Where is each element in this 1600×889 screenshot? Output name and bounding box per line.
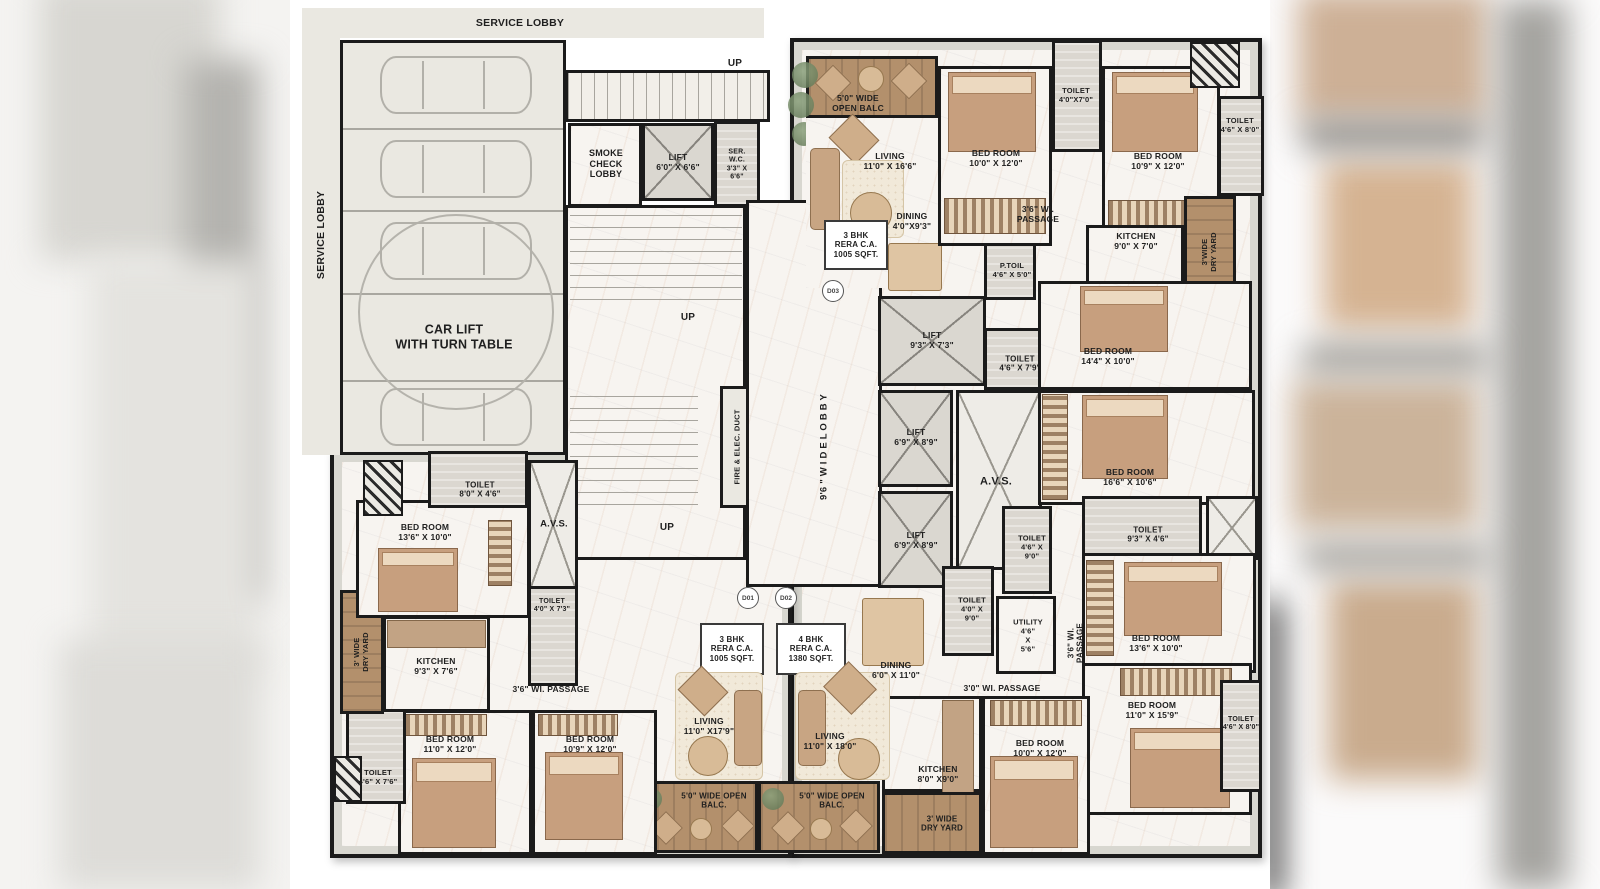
wardrobe-1159 [1120, 668, 1232, 696]
wardrobe-136l [488, 520, 512, 586]
toilet-46x79-label: TOILET4'6" X 7'9" [999, 355, 1040, 374]
blur-shape [1303, 345, 1488, 371]
fire-elec-duct-label: FIRE & ELEC. DUCT [734, 409, 743, 484]
blurred-left-panel [0, 0, 290, 889]
toilet-46x80-top [1218, 96, 1264, 196]
powder-toilet-label: P.TOIL4'6" X 5'0" [993, 262, 1032, 280]
car-4 [380, 388, 532, 446]
avs-shaft-right-label: A.V.S. [980, 476, 1012, 489]
avs-shaft-left-label: A.V.S. [540, 518, 568, 529]
balc-bl-seat-2 [690, 818, 712, 840]
tree-5 [762, 788, 784, 810]
blur-shape [1328, 580, 1478, 780]
stairs-mid [570, 212, 742, 300]
tree-2 [788, 92, 814, 118]
unit-box-3bhk-bottom-label: 3 BHKRERA C.A.1005 SQFT. [710, 635, 755, 663]
bed-144 [1080, 286, 1168, 352]
toilet-40x90-label: TOILET4'0" X9'0" [958, 597, 986, 624]
blur-shape [1323, 160, 1473, 330]
passage-bottom-left-label: 3'6" WI. PASSAGE [512, 684, 589, 694]
car-lift-room-label: CAR LIFTWITH TURN TABLE [395, 322, 512, 352]
balc-seat-2 [858, 66, 884, 92]
smoke-check-lobby-label: SMOKECHECKLOBBY [589, 148, 623, 180]
toilet-46x80-bottom-label: TOILET4'6" X 8'0" [1223, 716, 1259, 733]
lift-93x73-label: LIFT9'3" X 7'3" [910, 330, 954, 350]
living-top-right-label: LIVING11'0" X 16'6" [864, 151, 917, 171]
up-label-mid-label: UP [681, 312, 695, 324]
bed-136r [1124, 562, 1222, 636]
toilet-40x73-label: TOILET4'0" X 7'3" [534, 598, 570, 615]
door-marker-d02: D02 [775, 587, 797, 609]
servant-wc-label: SER.W.C.3'3" X6'6" [727, 149, 748, 182]
car-2 [380, 140, 532, 198]
bedroom-136-left-label: BED ROOM13'6" X 10'0" [398, 522, 451, 542]
blur-shape [1268, 600, 1282, 889]
dining-table-tr [888, 243, 942, 291]
unit-box-3bhk-top-label: 3 BHKRERA C.A.1005 SQFT. [834, 231, 879, 259]
door-marker-d03: D03 [822, 280, 844, 302]
toilet-46x90-label: TOILET4'6" X9'0" [1018, 535, 1046, 562]
bed-1112 [412, 758, 496, 848]
wardrobe-166 [1042, 394, 1068, 500]
bed-136l [378, 548, 458, 612]
toilet-40x70-label: TOILET4'0"X7'0" [1059, 87, 1093, 105]
open-balc-bottom-left-label: 5'0" WIDE OPENBALC. [681, 792, 746, 811]
wardrobe-1092 [538, 714, 618, 736]
open-balc-top-right-label: 5'0" WIDEOPEN BALC [832, 93, 884, 113]
blur-shape [60, 640, 260, 889]
living-bottom-right-label: LIVING11'0" X 18'0" [804, 731, 857, 751]
screenshot-stage: D01D02D03SERVICE LOBBYSERVICE LOBBYCAR L… [0, 0, 1600, 889]
car-stall-divider-2 [343, 210, 563, 212]
toilet-93x46-label: TOILET9'3" X 4'6" [1127, 526, 1168, 545]
unit-box-4bhk-label: 4 BHKRERA C.A.1380 SQFT. [789, 635, 834, 663]
bedroom-tr-2-label: BED ROOM10'9" X 12'0" [1131, 151, 1184, 171]
up-label-low-label: UP [660, 522, 674, 534]
bedroom-136-right-label: BED ROOM13'6" X 10'0" [1129, 633, 1182, 653]
bed-1012b [990, 756, 1078, 848]
dry-yard-left-label: 3' WIDEDRY YARD [353, 632, 371, 672]
bed-1092 [545, 752, 623, 840]
kitchen-bottom-right-label: KITCHEN8'0" X9'0" [917, 764, 958, 784]
tree-1 [792, 62, 818, 88]
bedroom-tr-1-label: BED ROOM10'0" X 12'0" [969, 148, 1022, 168]
toilet-46x76-label: TOILET4'6" X 7'6" [359, 769, 398, 787]
blur-shape [1298, 0, 1488, 120]
toilet-46x80-top-label: TOILET4'6" X 8'0" [1221, 117, 1260, 135]
sofa-tr-1 [810, 148, 840, 230]
sofa-lbl [734, 690, 762, 766]
blurred-right-panel [1268, 0, 1600, 889]
deck-right [1206, 496, 1258, 560]
wardrobe-136r [1086, 560, 1114, 656]
bedroom-1012-bottom-label: BED ROOM10'0" X 12'0" [1013, 738, 1066, 758]
dining-top-right-label: DINING4'0"X9'3" [893, 211, 931, 231]
up-label-top-label: UP [728, 58, 742, 70]
bed-tr-1 [948, 72, 1036, 152]
blur-shape [1303, 120, 1483, 150]
sofa-lbr [798, 690, 826, 766]
toilet-80x46 [428, 451, 528, 508]
blur-shape [1293, 380, 1478, 530]
main-lift-label: LIFT6'0" X 6'6" [656, 152, 700, 172]
stairs-low [570, 395, 698, 505]
blur-shape [90, 260, 260, 680]
corner-hatch-tr [1190, 42, 1240, 88]
dining-bottom-right-label: DINING6'0" X 11'0" [872, 660, 920, 680]
car-1 [380, 56, 532, 114]
dry-yard-right-label: 3'WIDEDRY YARD [1201, 232, 1219, 272]
dining-table-br [862, 598, 924, 666]
wardrobe-1112 [405, 714, 487, 736]
bedroom-166-label: BED ROOM16'6" X 10'6" [1103, 467, 1156, 487]
door-marker-d01: D01 [737, 587, 759, 609]
blur-shape [1498, 0, 1568, 889]
passage-30-label: 3'0" WI. PASSAGE [963, 683, 1040, 693]
passage-top-right-label: 3'6" WI.PASSAGE [1017, 204, 1059, 224]
bedroom-144-label: BED ROOM14'4" X 10'0" [1081, 346, 1134, 366]
lift-69x89-b-label: LIFT6'9" X 8'9" [894, 530, 938, 550]
kitchen-top-right-label: KITCHEN9'0" X 7'0" [1114, 231, 1158, 251]
car-3 [380, 222, 532, 280]
open-balc-bottom-right-label: 5'0" WIDE OPENBALC. [799, 792, 864, 811]
passage-vert-right-label: 3'6" WI.PASSAGE [1067, 623, 1086, 663]
bedroom-1159-label: BED ROOM11'0" X 15'9" [1126, 700, 1179, 720]
blur-shape [1303, 545, 1488, 569]
bed-tr-2 [1112, 72, 1198, 152]
service-lobby-top-label: SERVICE LOBBY [476, 17, 564, 29]
kitchen-bottom-left-label: KITCHEN9'3" X 7'6" [414, 656, 458, 676]
round-table-lbl [688, 736, 728, 776]
bedroom-1092-label: BED ROOM10'9" X 12'0" [563, 734, 616, 754]
toilet-80x46-label: TOILET8'0" X 4'6" [459, 481, 500, 500]
car-stall-divider-1 [343, 128, 563, 130]
bed-1159 [1130, 728, 1230, 808]
wardrobe-1012b [990, 700, 1082, 726]
ledge-hatch-left [363, 460, 403, 516]
bedroom-1112-label: BED ROOM11'0" X 12'0" [424, 734, 477, 754]
floor-plan: D01D02D03SERVICE LOBBYSERVICE LOBBYCAR L… [290, 0, 1270, 889]
stairs-top [565, 70, 770, 122]
service-lobby-left-label: SERVICE LOBBY [315, 191, 327, 279]
dry-yard-bottom-right-label: 3' WIDEDRY YARD [921, 815, 963, 834]
utility-label: UTILITY4'6"X5'6" [1013, 618, 1043, 653]
counter-bl [387, 620, 486, 648]
wide-lobby-label: 9'6 " W I D E L O B B Y [818, 394, 829, 500]
toilet-46x80-bottom [1220, 680, 1262, 792]
lift-69x89-a-label: LIFT6'9" X 8'9" [894, 427, 938, 447]
balc-br-seat-2 [810, 818, 832, 840]
living-bottom-left-label: LIVING11'0" X17'9" [684, 716, 734, 736]
